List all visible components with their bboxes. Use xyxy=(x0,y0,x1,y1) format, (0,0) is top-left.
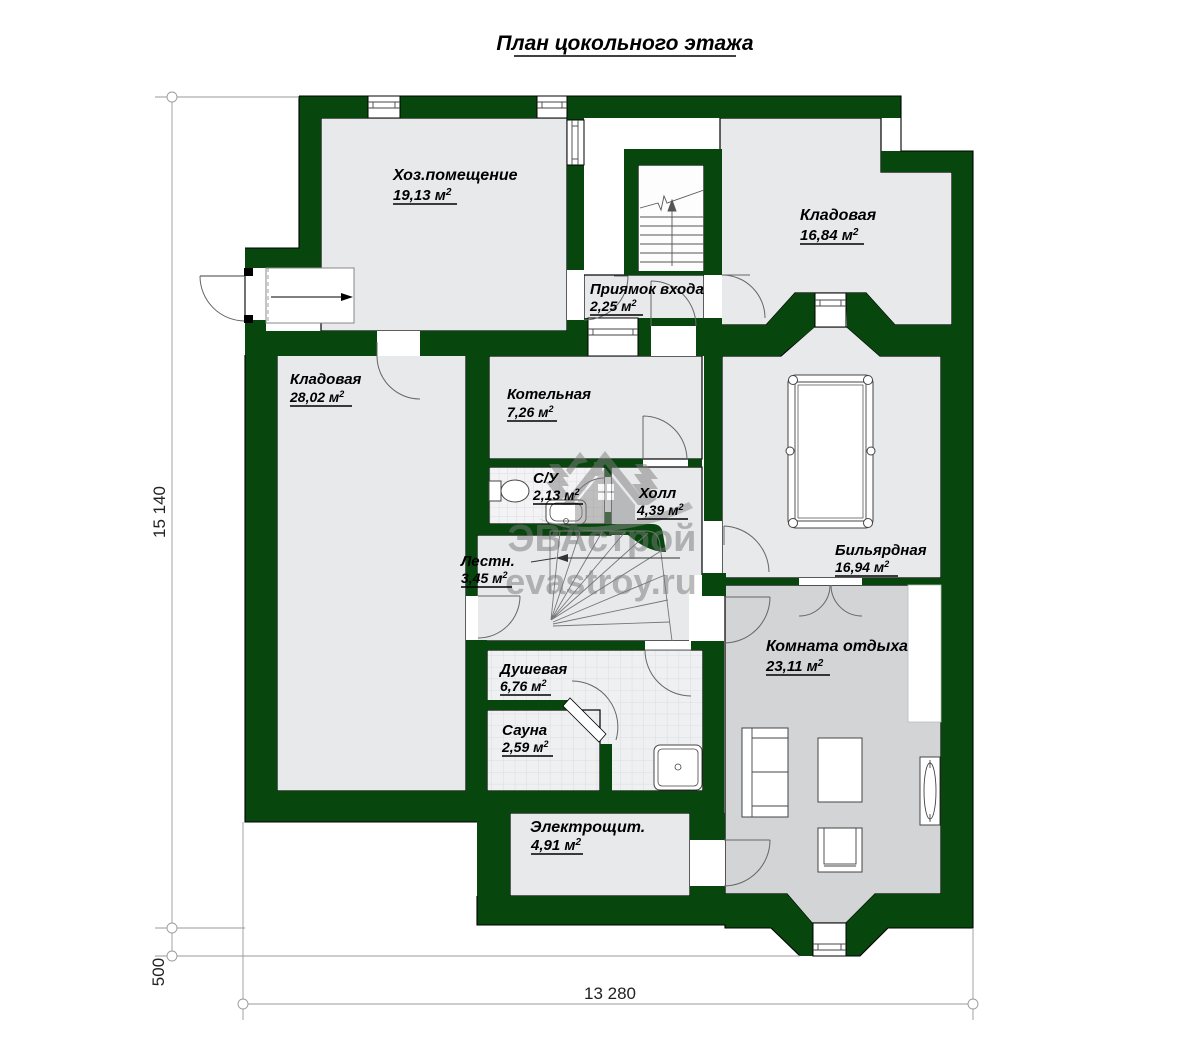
svg-text:Бильярдная: Бильярдная xyxy=(835,542,927,559)
svg-text:7,26 м2: 7,26 м2 xyxy=(507,404,554,420)
svg-text:Электрощит.: Электрощит. xyxy=(530,819,645,836)
svg-text:Душевая: Душевая xyxy=(498,661,567,678)
svg-text:6,76 м2: 6,76 м2 xyxy=(500,678,547,694)
svg-text:3,45 м2: 3,45 м2 xyxy=(461,570,508,586)
svg-text:ЭВАстрой: ЭВАстрой xyxy=(507,518,696,560)
svg-text:2,13 м2: 2,13 м2 xyxy=(532,487,580,503)
svg-text:План цокольного этажа: План цокольного этажа xyxy=(496,32,753,55)
svg-text:Кладовая: Кладовая xyxy=(290,371,362,388)
svg-text:Приямок входа: Приямок входа xyxy=(590,281,704,298)
svg-text:16,94 м2: 16,94 м2 xyxy=(835,559,889,575)
svg-text:Холл: Холл xyxy=(638,485,677,502)
svg-text:28,02 м2: 28,02 м2 xyxy=(289,389,344,405)
svg-text:4,39 м2: 4,39 м2 xyxy=(636,502,684,518)
svg-text:Котельная: Котельная xyxy=(507,386,591,403)
svg-text:С/У: С/У xyxy=(533,470,560,487)
svg-text:Лестн.: Лестн. xyxy=(460,553,515,570)
svg-text:Хоз.помещение: Хоз.помещение xyxy=(392,167,518,184)
svg-text:500: 500 xyxy=(149,958,168,986)
svg-text:2,59 м2: 2,59 м2 xyxy=(501,739,549,755)
svg-text:4,91 м2: 4,91 м2 xyxy=(530,837,581,854)
svg-text:Сауна: Сауна xyxy=(502,722,547,739)
svg-text:Кладовая: Кладовая xyxy=(800,207,877,224)
svg-text:23,11 м2: 23,11 м2 xyxy=(765,658,824,675)
svg-text:13 280: 13 280 xyxy=(584,984,636,1003)
svg-text:evastroy.ru: evastroy.ru xyxy=(505,561,696,602)
svg-text:2,25 м2: 2,25 м2 xyxy=(589,298,637,314)
svg-text:19,13 м2: 19,13 м2 xyxy=(393,187,452,204)
svg-text:15 140: 15 140 xyxy=(150,486,169,538)
svg-text:Комната отдыха: Комната отдыха xyxy=(766,638,908,655)
svg-text:16,84 м2: 16,84 м2 xyxy=(800,227,859,244)
